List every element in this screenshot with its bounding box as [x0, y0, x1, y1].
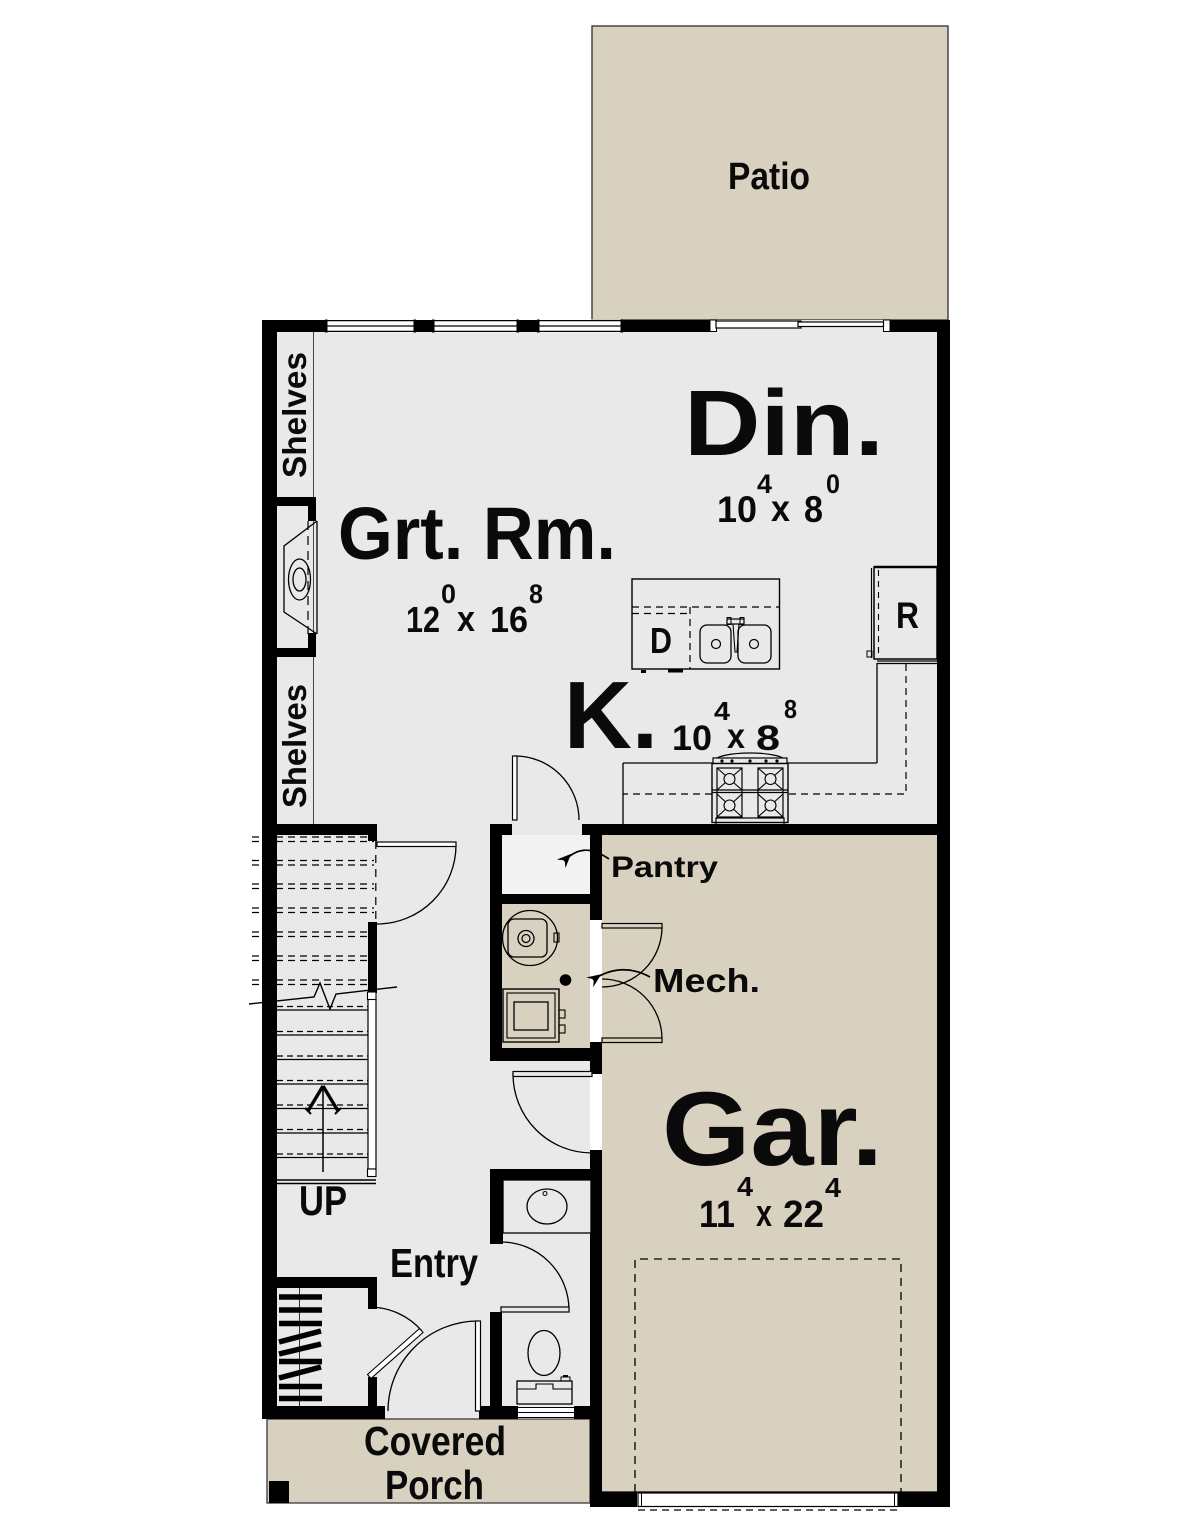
svg-text:R: R [896, 595, 919, 636]
svg-text:Shelves: Shelves [276, 352, 313, 478]
svg-text:8: 8 [804, 489, 823, 530]
svg-text:x: x [727, 717, 745, 756]
svg-text:Porch: Porch [385, 1462, 484, 1508]
svg-text:x: x [457, 598, 475, 639]
svg-text:16: 16 [490, 599, 528, 640]
svg-text:Patio: Patio [728, 156, 810, 198]
svg-text:Mech.: Mech. [653, 962, 760, 999]
svg-text:8: 8 [756, 719, 780, 758]
svg-text:x: x [756, 1193, 772, 1235]
svg-text:8: 8 [784, 694, 797, 724]
svg-text:11: 11 [699, 1194, 735, 1236]
svg-text:K.: K. [564, 662, 658, 769]
svg-text:4: 4 [757, 469, 772, 499]
svg-text:Pantry: Pantry [611, 851, 718, 884]
svg-text:10: 10 [672, 719, 712, 758]
svg-text:10: 10 [717, 489, 757, 530]
svg-text:12: 12 [406, 599, 440, 640]
svg-text:x: x [771, 488, 790, 529]
svg-text:Entry: Entry [390, 1240, 478, 1286]
svg-text:0: 0 [441, 579, 456, 609]
svg-text:4: 4 [737, 1171, 753, 1202]
svg-text:Shelves: Shelves [276, 684, 313, 808]
svg-text:Din.: Din. [684, 371, 884, 475]
svg-text:22: 22 [783, 1194, 824, 1236]
svg-text:8: 8 [529, 579, 543, 609]
svg-text:0: 0 [826, 469, 840, 499]
svg-text:Gar.: Gar. [662, 1071, 883, 1188]
svg-text:Covered: Covered [364, 1418, 506, 1464]
svg-text:Grt. Rm.: Grt. Rm. [338, 492, 616, 575]
svg-text:4: 4 [825, 1172, 841, 1203]
svg-text:UP: UP [299, 1177, 347, 1224]
svg-text:D: D [650, 620, 672, 661]
